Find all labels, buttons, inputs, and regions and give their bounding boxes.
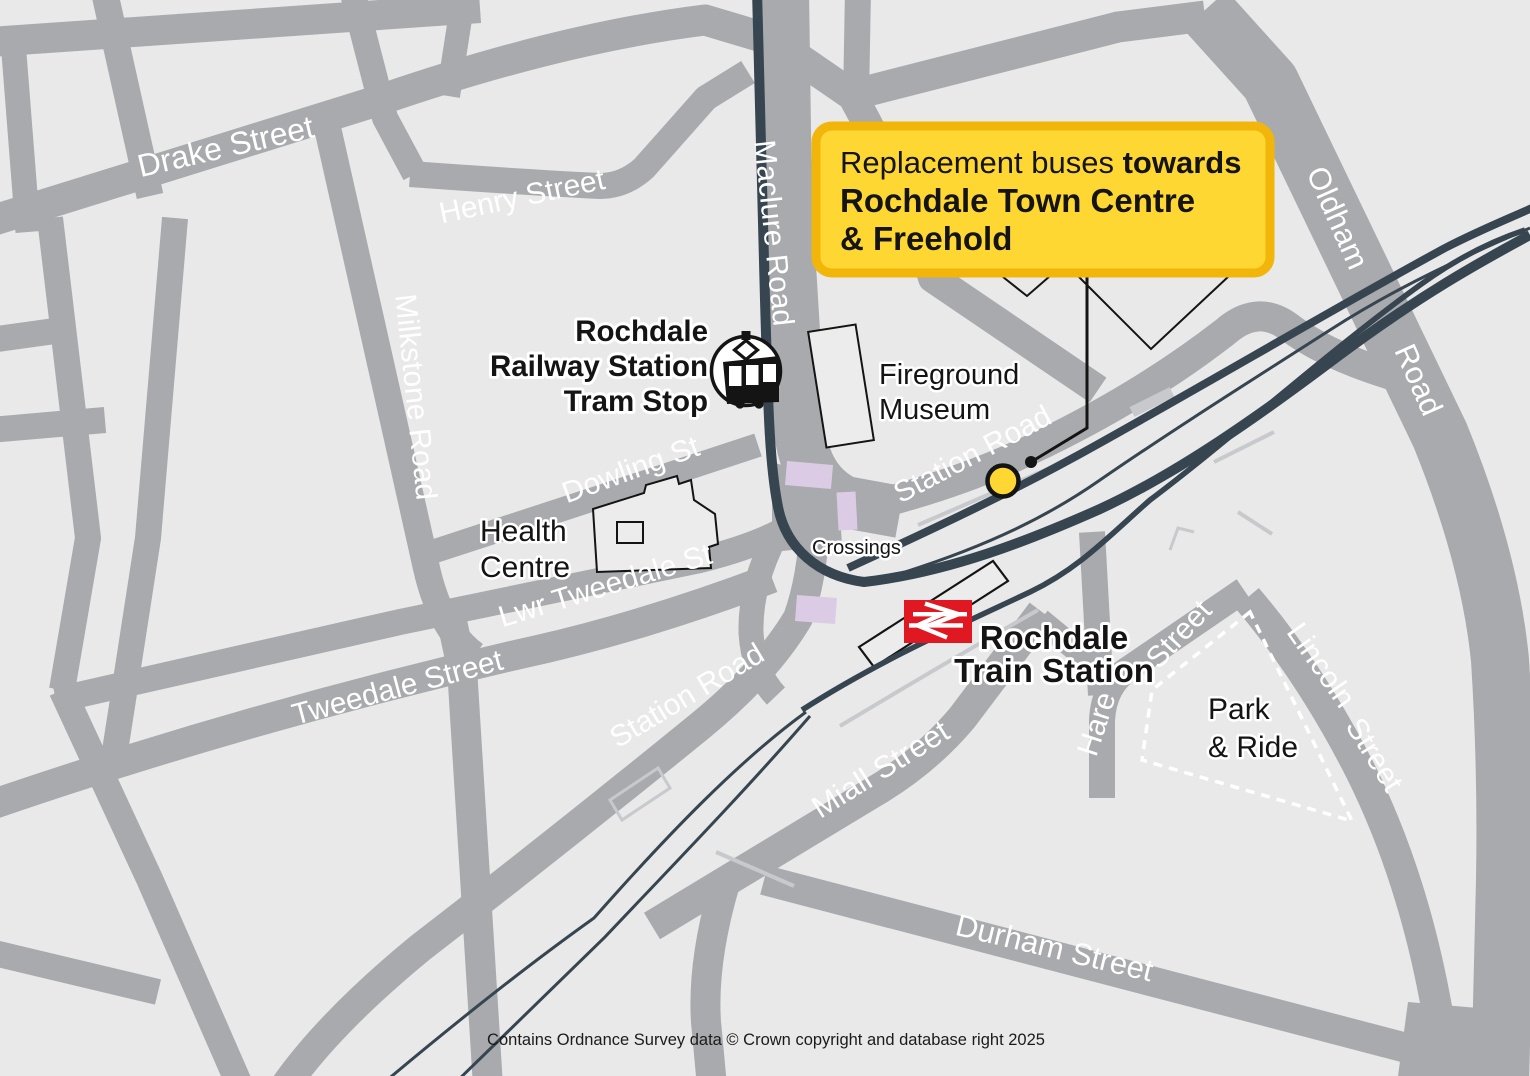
svg-text:Rochdale Town Centre: Rochdale Town Centre: [840, 182, 1195, 219]
svg-text:Contains Ordnance Survey data: Contains Ordnance Survey data © Crown co…: [487, 1031, 1045, 1049]
svg-text:Tram Stop: Tram Stop: [564, 385, 708, 418]
svg-text:Railway Station: Railway Station: [490, 350, 708, 383]
svg-text:& Freehold: & Freehold: [840, 220, 1012, 257]
svg-text:& Ride: & Ride: [1208, 731, 1298, 764]
svg-text:Health: Health: [480, 515, 567, 548]
svg-text:Replacement buses towards: Replacement buses towards: [840, 145, 1241, 180]
svg-text:Rochdale: Rochdale: [980, 619, 1129, 656]
svg-text:Rochdale: Rochdale: [575, 315, 708, 348]
svg-text:Centre: Centre: [480, 551, 570, 584]
svg-text:Fireground: Fireground: [879, 359, 1019, 391]
svg-text:Crossings: Crossings: [812, 537, 901, 559]
svg-text:Train Station: Train Station: [954, 652, 1154, 689]
svg-text:Museum: Museum: [879, 394, 990, 426]
svg-text:Park: Park: [1208, 693, 1271, 726]
